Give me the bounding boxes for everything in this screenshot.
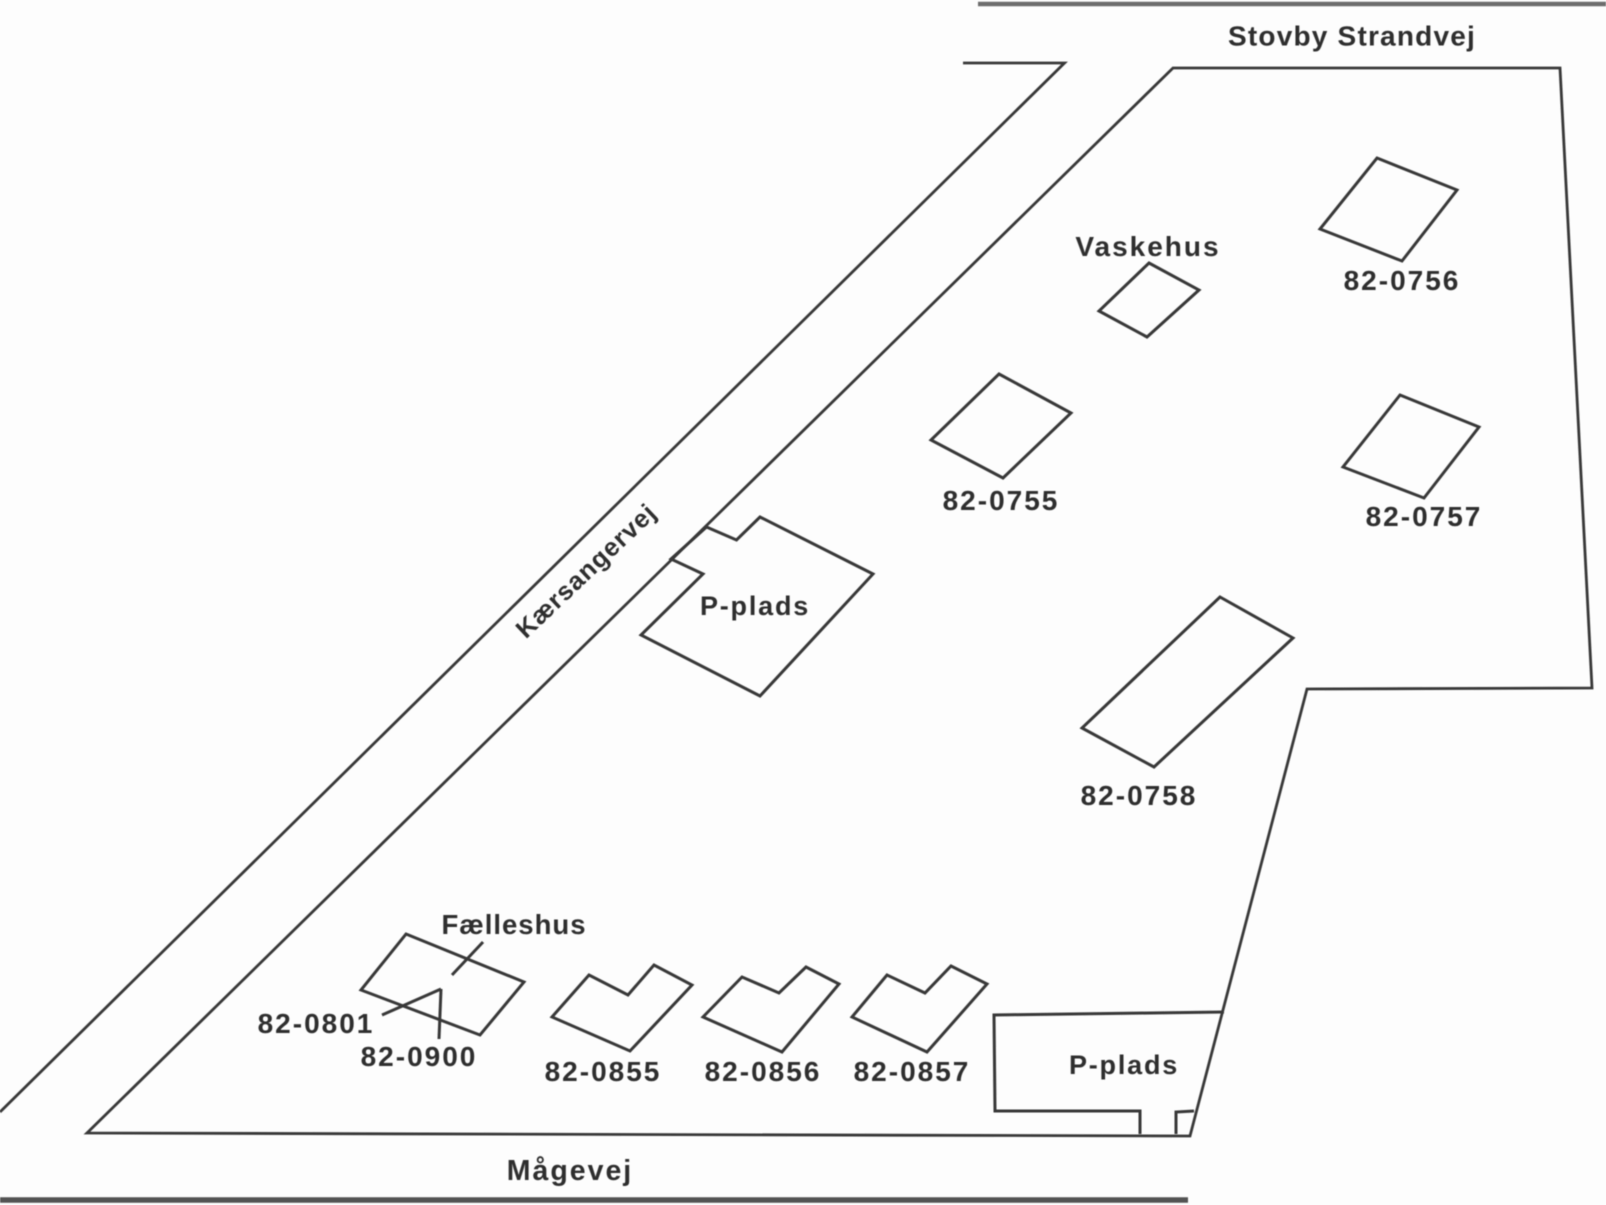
svg-text:Stovby Strandvej: Stovby Strandvej <box>1228 21 1476 52</box>
svg-text:82-0855: 82-0855 <box>545 1056 662 1087</box>
svg-text:82-0756: 82-0756 <box>1344 265 1461 296</box>
svg-text:82-0900: 82-0900 <box>361 1041 478 1072</box>
svg-text:P-plads: P-plads <box>1069 1050 1179 1080</box>
svg-text:82-0758: 82-0758 <box>1081 780 1198 811</box>
svg-text:82-0856: 82-0856 <box>705 1056 822 1087</box>
svg-text:82-0755: 82-0755 <box>943 485 1060 516</box>
svg-text:82-0857: 82-0857 <box>854 1056 971 1087</box>
svg-text:Fælleshus: Fælleshus <box>441 909 586 940</box>
svg-text:82-0801: 82-0801 <box>258 1008 375 1039</box>
svg-text:Mågevej: Mågevej <box>507 1155 633 1187</box>
svg-text:Kærsangervej: Kærsangervej <box>511 498 663 643</box>
svg-text:Vaskehus: Vaskehus <box>1075 231 1220 262</box>
svg-text:82-0757: 82-0757 <box>1366 501 1483 532</box>
svg-text:P-plads: P-plads <box>700 591 810 621</box>
